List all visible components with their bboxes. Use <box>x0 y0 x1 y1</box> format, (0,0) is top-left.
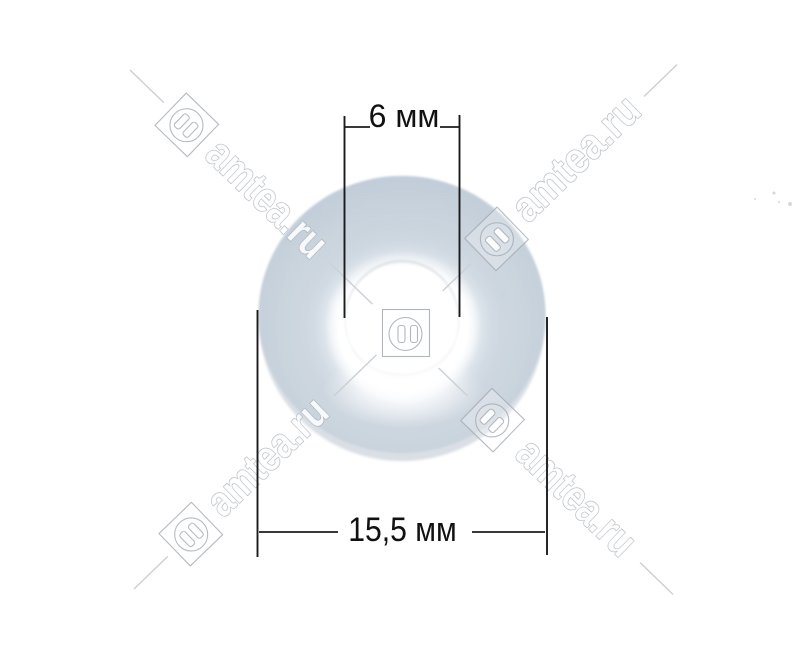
svg-text:6 мм: 6 мм <box>369 98 440 134</box>
svg-text:15,5 мм: 15,5 мм <box>348 511 457 549</box>
